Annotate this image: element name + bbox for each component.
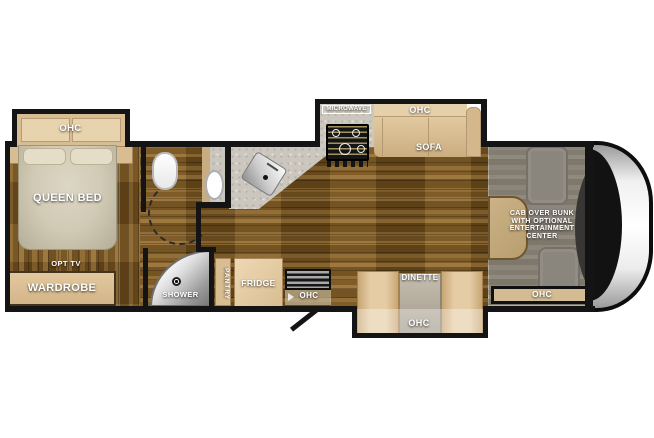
nightstand bbox=[116, 146, 133, 164]
windshield-shadow bbox=[592, 149, 622, 301]
wall bbox=[5, 306, 357, 312]
shower-drain bbox=[172, 277, 181, 286]
floorplan-canvas: OHC QUEEN BED OPT TV WARDROBE SHOWER PAN… bbox=[0, 0, 654, 438]
wall bbox=[483, 306, 595, 312]
kitchen-sink-drain bbox=[263, 175, 268, 180]
wardrobe-label: WARDROBE bbox=[8, 282, 116, 294]
wall-bath-left bbox=[141, 145, 146, 212]
fridge-label: FRIDGE bbox=[234, 279, 283, 288]
wall-bath-bottom bbox=[196, 202, 231, 208]
wall bbox=[481, 99, 487, 147]
microwave-label: MICROWAVE bbox=[322, 106, 371, 113]
stove-burner bbox=[352, 129, 360, 137]
sofa-armrest bbox=[466, 107, 481, 157]
pantry-label: PANTRY bbox=[217, 263, 230, 305]
wall bbox=[352, 333, 488, 338]
cab-ohc-label: OHC bbox=[491, 290, 593, 299]
bathroom-sink bbox=[205, 170, 224, 200]
wall bbox=[315, 99, 486, 104]
dinette-ohc-label: OHC bbox=[392, 319, 446, 329]
entry-steps bbox=[285, 269, 331, 290]
cab-bunk-line: CENTER bbox=[494, 233, 590, 241]
sofa-seam bbox=[382, 118, 383, 156]
bedroom-ohc-label: OHC bbox=[43, 124, 98, 134]
wall-bedroom-right bbox=[143, 248, 148, 307]
dinette-label: DINETTE bbox=[393, 274, 447, 283]
wall bbox=[12, 109, 17, 147]
cab-bunk-text: CAB OVER BUNK WITH OPTIONAL ENTERTAINMEN… bbox=[494, 210, 590, 241]
shower-label: SHOWER bbox=[153, 291, 208, 299]
queen-bed-label: QUEEN BED bbox=[18, 192, 117, 204]
wall bbox=[125, 141, 320, 147]
front-nose-cap bbox=[592, 141, 653, 312]
bath-door-swing-arc bbox=[148, 181, 212, 245]
sofa-label: SOFA bbox=[404, 143, 454, 153]
stove-burner bbox=[332, 129, 340, 137]
wall bbox=[196, 202, 201, 252]
stove-vent bbox=[327, 161, 368, 167]
pillow bbox=[70, 148, 113, 165]
sofa-ohc-label: OHC bbox=[395, 106, 445, 116]
stove-burner bbox=[357, 145, 365, 153]
entry-ohc-label: OHC bbox=[287, 292, 331, 301]
pillow bbox=[23, 148, 66, 165]
wall bbox=[315, 99, 320, 147]
cab-bunk-line: CAB OVER BUNK bbox=[494, 210, 590, 218]
opt-tv-label: OPT TV bbox=[38, 260, 94, 268]
wall-bath-right bbox=[225, 145, 231, 206]
stove-burner bbox=[339, 143, 351, 155]
wall bbox=[12, 109, 130, 114]
wall-shower-right bbox=[209, 247, 214, 307]
cab-bunk-line: ENTERTAINMENT bbox=[494, 225, 590, 233]
wall bbox=[481, 141, 594, 147]
